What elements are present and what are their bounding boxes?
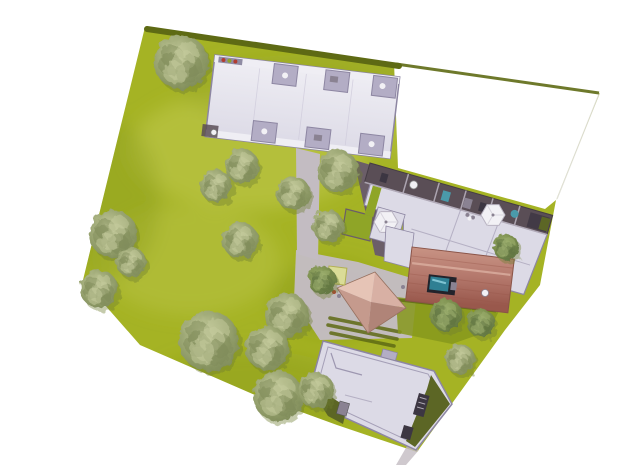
tree-foliage: [318, 225, 331, 238]
tree-foliage: [472, 322, 484, 334]
tree-foliage: [253, 347, 271, 365]
chimney-dot: [401, 285, 405, 289]
tree-foliage: [324, 170, 342, 188]
tree-foliage: [97, 233, 117, 253]
tree-foliage: [231, 165, 245, 179]
garden-furniture: [337, 294, 341, 298]
patio-furniture: [314, 134, 323, 141]
rooftop-box: [450, 282, 457, 291]
entry-table: [210, 129, 217, 136]
flat-connector-roof: [384, 226, 414, 268]
tree-foliage: [282, 192, 296, 206]
tree-foliage: [87, 288, 103, 304]
skylight-window: [429, 276, 449, 291]
tree-foliage: [121, 261, 134, 274]
roof-vent: [481, 289, 489, 297]
patio-furniture: [330, 76, 339, 83]
tree-foliage: [228, 239, 243, 254]
tree-foliage: [436, 314, 449, 327]
site-plan-rendering: [0, 0, 620, 465]
tree-foliage: [163, 61, 186, 84]
tree-foliage: [313, 279, 325, 291]
tree-foliage: [206, 185, 219, 198]
site-plan-page: [0, 0, 620, 465]
tree-foliage: [304, 389, 319, 404]
tree-foliage: [190, 340, 215, 365]
tree-foliage: [450, 358, 463, 371]
tree-foliage: [498, 246, 509, 257]
tree-foliage: [262, 395, 283, 416]
